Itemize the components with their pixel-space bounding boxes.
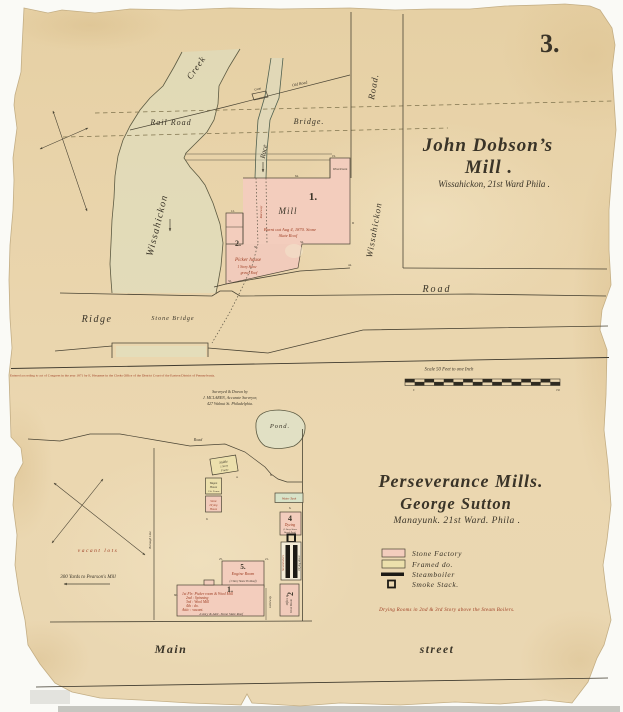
svg-text:44.: 44. — [348, 263, 352, 267]
svg-text:Stone Bridge: Stone Bridge — [151, 316, 194, 322]
svg-text:300 Yards to Pearson's Mill: 300 Yards to Pearson's Mill — [60, 575, 116, 580]
svg-text:Drying Rooms in 2nd & 3rd Stor: Drying Rooms in 2nd & 3rd Story above th… — [378, 608, 515, 613]
svg-text:Smoke Stack.: Smoke Stack. — [412, 580, 459, 589]
svg-text:Dyeing: Dyeing — [284, 523, 296, 527]
svg-text:John Dobson’s: John Dobson’s — [422, 135, 553, 156]
svg-text:Steamboiler: Steamboiler — [412, 570, 455, 579]
svg-text:21.: 21. — [265, 557, 269, 561]
svg-text:Wool Room: Wool Room — [289, 598, 293, 613]
svg-text:Wheelroom: Wheelroom — [333, 167, 348, 171]
svg-text:Entered according to act of Co: Entered according to act of Congress in … — [10, 374, 215, 378]
svg-text:Drying: Drying — [209, 504, 219, 507]
svg-text:George Sutton: George Sutton — [400, 494, 512, 513]
svg-text:Drying above: Drying above — [298, 555, 301, 572]
svg-text:Mill .: Mill . — [464, 157, 513, 178]
svg-text:Manayunk. 21st Ward. Phila .: Manayunk. 21st Ward. Phila . — [392, 516, 520, 526]
svg-text:4.: 4. — [236, 475, 239, 479]
svg-text:Scale 50 Feet to one Inch: Scale 50 Feet to one Inch — [425, 368, 474, 373]
svg-text:Gateway: Gateway — [268, 595, 272, 608]
svg-text:Mill: Mill — [278, 206, 298, 216]
svg-text:Picker house: Picker house — [234, 258, 262, 263]
svg-text:1 Story Stone: 1 Story Stone — [237, 265, 257, 269]
svg-text:1.: 1. — [309, 191, 318, 203]
svg-text:Engine Room: Engine Room — [231, 571, 255, 576]
svg-text:32.: 32. — [228, 279, 232, 283]
svg-text:Stone Factory: Stone Factory — [412, 549, 462, 558]
svg-text:Pond.: Pond. — [269, 423, 290, 430]
svg-text:vacant lots: vacant lots — [78, 548, 118, 554]
svg-text:3.: 3. — [540, 29, 560, 58]
svg-text:60.: 60. — [174, 593, 178, 597]
svg-text:House: House — [209, 486, 218, 489]
svg-text:6.: 6. — [289, 506, 292, 510]
svg-text:street: street — [419, 644, 455, 656]
svg-text:Rail Road: Rail Road — [149, 118, 191, 127]
svg-text:Borough Line: Borough Line — [148, 531, 152, 549]
svg-text:House: House — [209, 508, 218, 511]
svg-text:427 Walnut St. Philadelphia.: 427 Walnut St. Philadelphia. — [207, 401, 253, 406]
svg-text:34.: 34. — [300, 240, 304, 244]
svg-text:gravel Roof: gravel Roof — [241, 271, 259, 275]
svg-text:4: 4 — [288, 514, 292, 523]
svg-text:64.: 64. — [295, 174, 299, 178]
svg-text:Road: Road — [421, 284, 451, 295]
svg-text:Wissahickon, 21st Ward Phila .: Wissahickon, 21st Ward Phila . — [438, 179, 550, 189]
svg-text:Water Tank: Water Tank — [282, 497, 297, 501]
svg-text:4 story & Attic. Stone Slate R: 4 story & Attic. Stone Slate Roof — [199, 612, 244, 616]
svg-text:Slate Roof: Slate Roof — [279, 233, 298, 238]
svg-text:12.: 12. — [231, 209, 235, 213]
svg-text:50.: 50. — [254, 245, 258, 249]
svg-text:9.: 9. — [206, 517, 209, 521]
svg-text:2.: 2. — [235, 239, 241, 248]
svg-text:25.: 25. — [219, 557, 223, 561]
svg-text:Raceway: Raceway — [259, 205, 263, 219]
svg-text:Perseverance Mills.: Perseverance Mills. — [378, 471, 544, 491]
svg-text:Wagon: Wagon — [210, 482, 218, 485]
svg-text:Bridge.: Bridge. — [294, 117, 325, 126]
svg-text:Main: Main — [154, 642, 188, 656]
svg-text:(1 Story Stone Tin Roof): (1 Story Stone Tin Roof) — [229, 580, 256, 583]
svg-text:19.: 19. — [332, 154, 336, 158]
svg-text:6.: 6. — [270, 473, 273, 477]
svg-text:Steamboilers: Steamboilers — [281, 554, 285, 570]
svg-text:Ridge: Ridge — [81, 314, 113, 325]
svg-text:5.: 5. — [240, 563, 246, 571]
svg-text:Stone: Stone — [210, 500, 217, 503]
svg-text:Surveyed & Drawn by: Surveyed & Drawn by — [212, 389, 248, 394]
svg-text:Road: Road — [193, 437, 203, 442]
svg-text:Framed do.: Framed do. — [411, 560, 453, 569]
svg-text:1 St. Frame: 1 St. Frame — [208, 490, 221, 493]
